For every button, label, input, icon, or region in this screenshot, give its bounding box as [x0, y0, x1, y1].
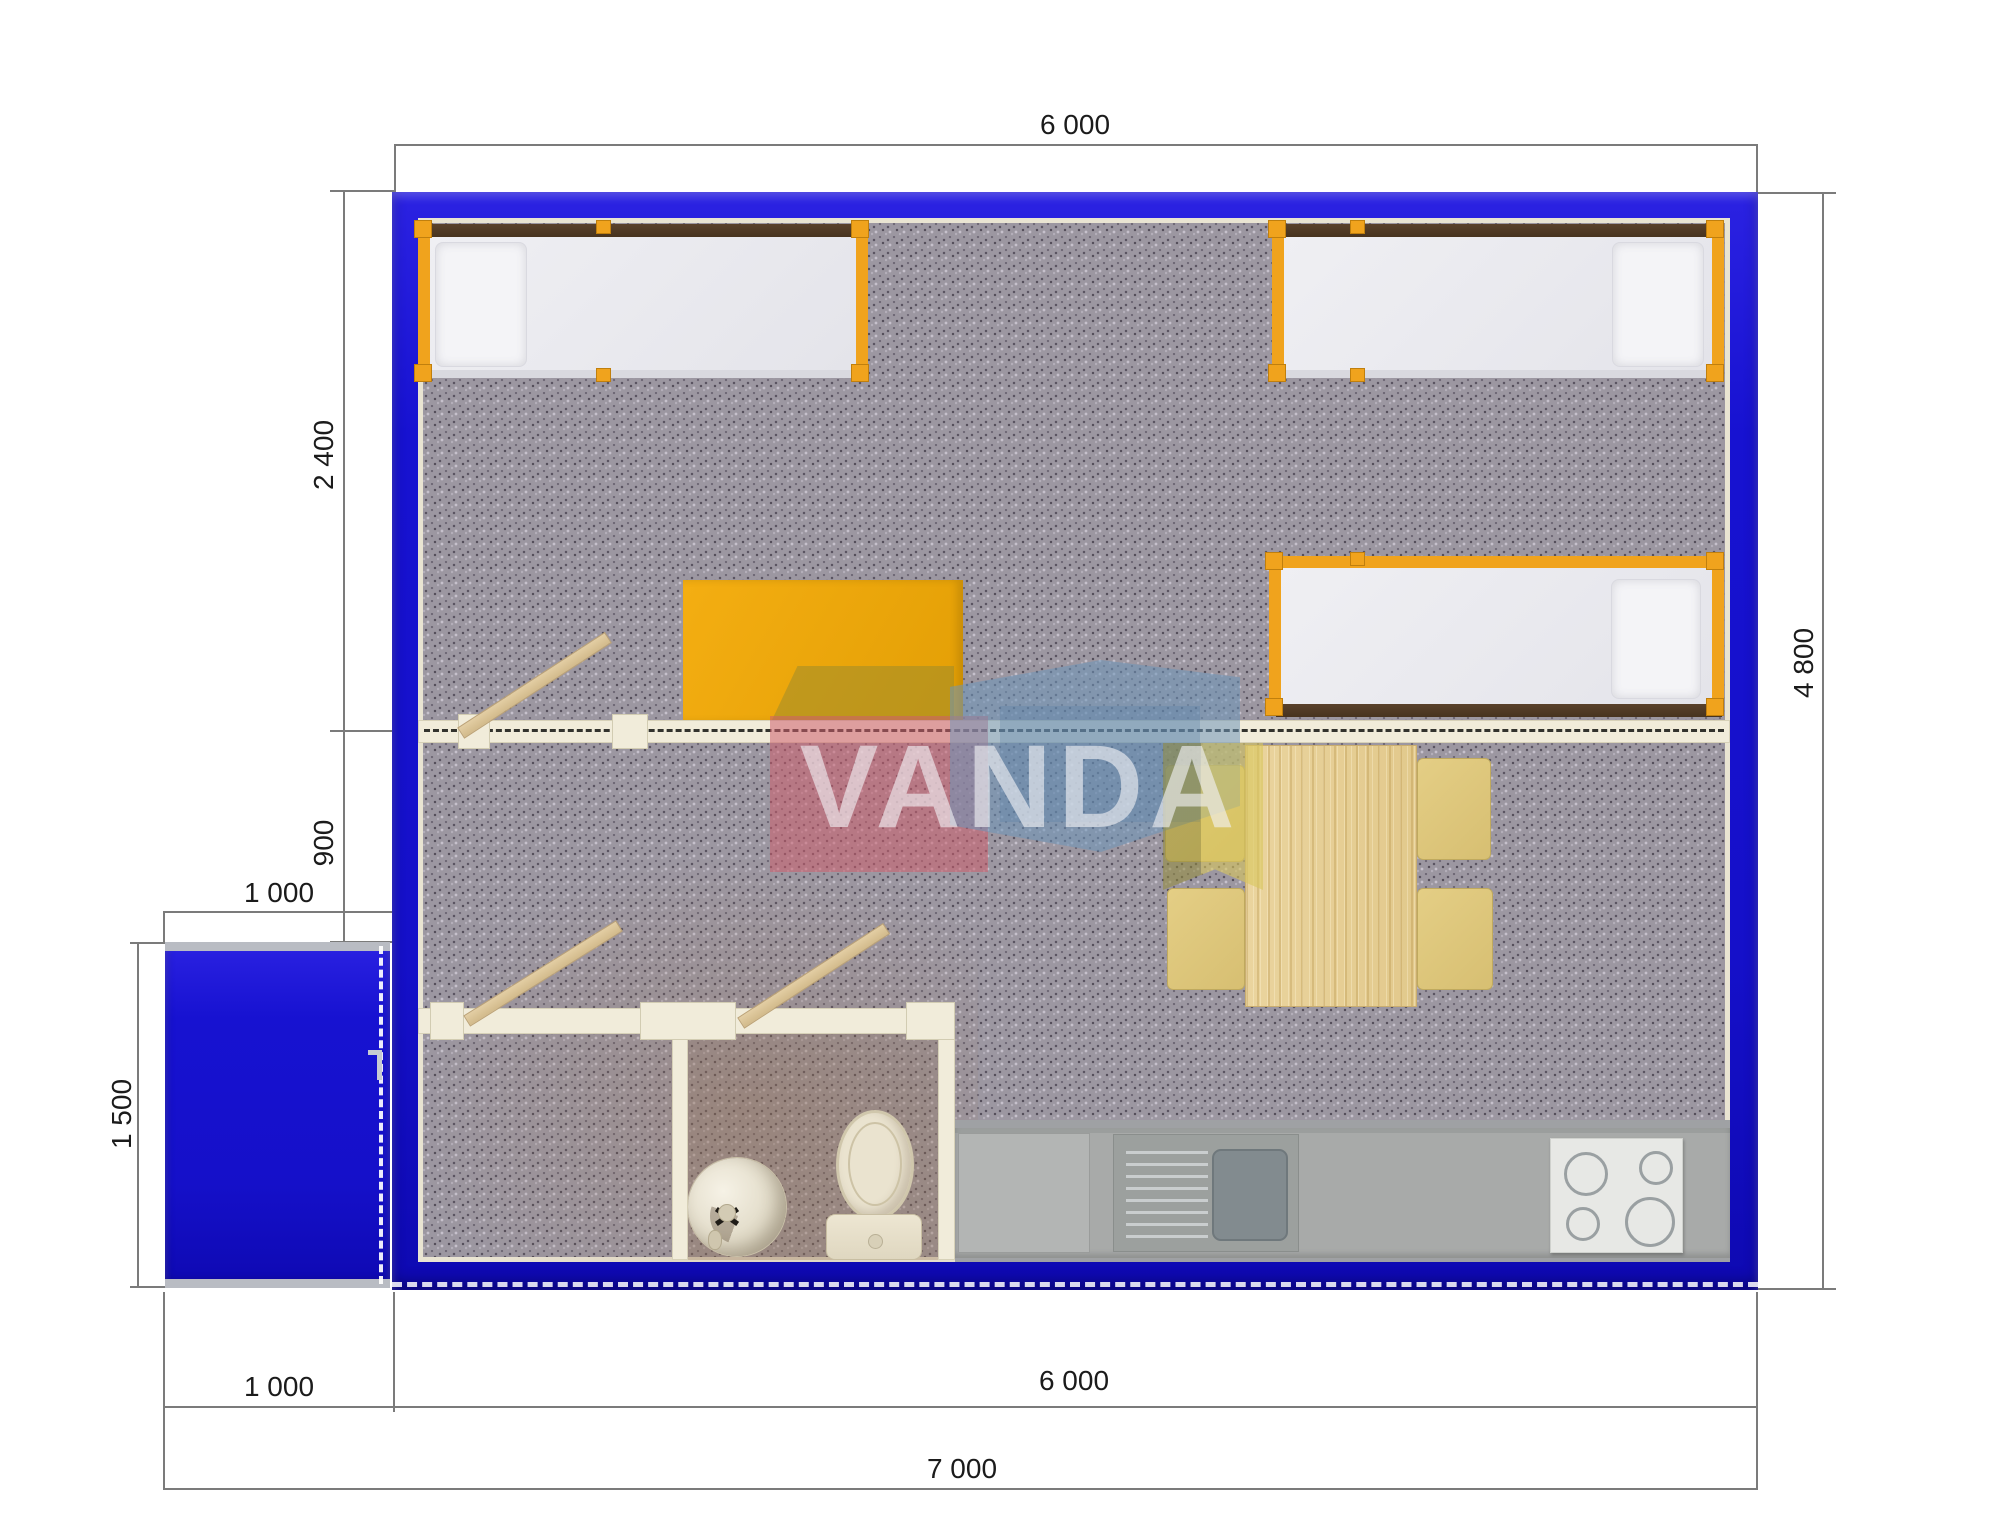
dim-line-bottom-1 — [163, 1406, 1758, 1408]
dim-label-main-width-bottom: 6 000 — [1004, 1364, 1144, 1398]
door-handle-icon — [368, 1050, 382, 1080]
porch-top-edge — [165, 942, 390, 951]
dim-tick-left-top — [330, 190, 394, 192]
entrance-door-dashed — [379, 946, 383, 1284]
dim-line-bottom-2 — [163, 1488, 1758, 1490]
dim-tick-right-top — [1758, 192, 1836, 194]
dim-label-porch-width-bottom: 1 000 — [209, 1370, 349, 1404]
sink-basin — [1212, 1149, 1288, 1241]
sink-drainboard — [1126, 1151, 1208, 1239]
floor-plan-canvas: 6 000 2 400 900 1 000 1 500 4 800 1 000 … — [0, 0, 2000, 1537]
pillow — [436, 243, 526, 366]
dim-label-total-width: 7 000 — [892, 1452, 1032, 1486]
dim-line-top — [394, 144, 1757, 146]
dim-label-bedroom-depth: 2 400 — [307, 385, 341, 525]
dim-ext-porch-top-left — [163, 911, 165, 942]
dim-ext-bottom-far-right — [1756, 1292, 1758, 1490]
porch-bottom-edge — [165, 1279, 390, 1288]
flush-button-icon — [868, 1234, 883, 1249]
dim-tick-porch-left-top — [130, 942, 166, 944]
sink-module — [1113, 1134, 1299, 1252]
burner-icon — [1566, 1207, 1600, 1241]
dim-label-porch-depth: 1 500 — [105, 1044, 139, 1184]
pillow — [1613, 243, 1703, 366]
dim-tick-porch-left-bottom — [130, 1286, 166, 1288]
dim-ext-bottom-far-left — [163, 1292, 165, 1490]
door-jamb — [430, 1002, 464, 1040]
chair-bottom-left — [1167, 888, 1245, 990]
burner-icon — [1625, 1197, 1675, 1247]
dim-ext-top-right — [1756, 144, 1758, 192]
chair-bottom-right — [1417, 888, 1493, 990]
dim-tick-right-bottom — [1758, 1288, 1836, 1290]
dining-table — [1245, 745, 1417, 1007]
door-jamb — [640, 1002, 736, 1040]
door-jamb — [906, 1002, 955, 1040]
dim-label-total-depth: 4 800 — [1787, 593, 1821, 733]
dim-ext-top-left — [394, 144, 396, 192]
dim-ext-bottom-mid — [393, 1292, 395, 1412]
washbasin — [688, 1158, 786, 1258]
toilet — [826, 1110, 924, 1260]
entrance-porch — [165, 942, 390, 1288]
cooktop-stove — [1550, 1138, 1683, 1253]
burner-icon — [1564, 1152, 1608, 1196]
dim-tick-left-mid — [330, 730, 394, 732]
wall-bottom-dashed-edge — [392, 1282, 1758, 1287]
chair-top-right — [1417, 758, 1491, 860]
pillow — [1612, 580, 1700, 698]
bathroom-divider-wall — [672, 1030, 688, 1260]
logo-brand-text: VANDA — [795, 712, 1245, 872]
bathroom-right-wall — [938, 1030, 955, 1260]
burner-icon — [1639, 1151, 1673, 1185]
dim-line-right — [1822, 192, 1824, 1290]
dim-line-left-column — [343, 190, 345, 943]
dim-line-porch-top — [163, 911, 394, 913]
dim-label-porch-width-top: 1 000 — [209, 876, 349, 910]
kitchen-cabinet-front — [958, 1133, 1090, 1253]
dim-label-top-width: 6 000 — [1005, 108, 1145, 142]
door-jamb — [612, 714, 648, 749]
